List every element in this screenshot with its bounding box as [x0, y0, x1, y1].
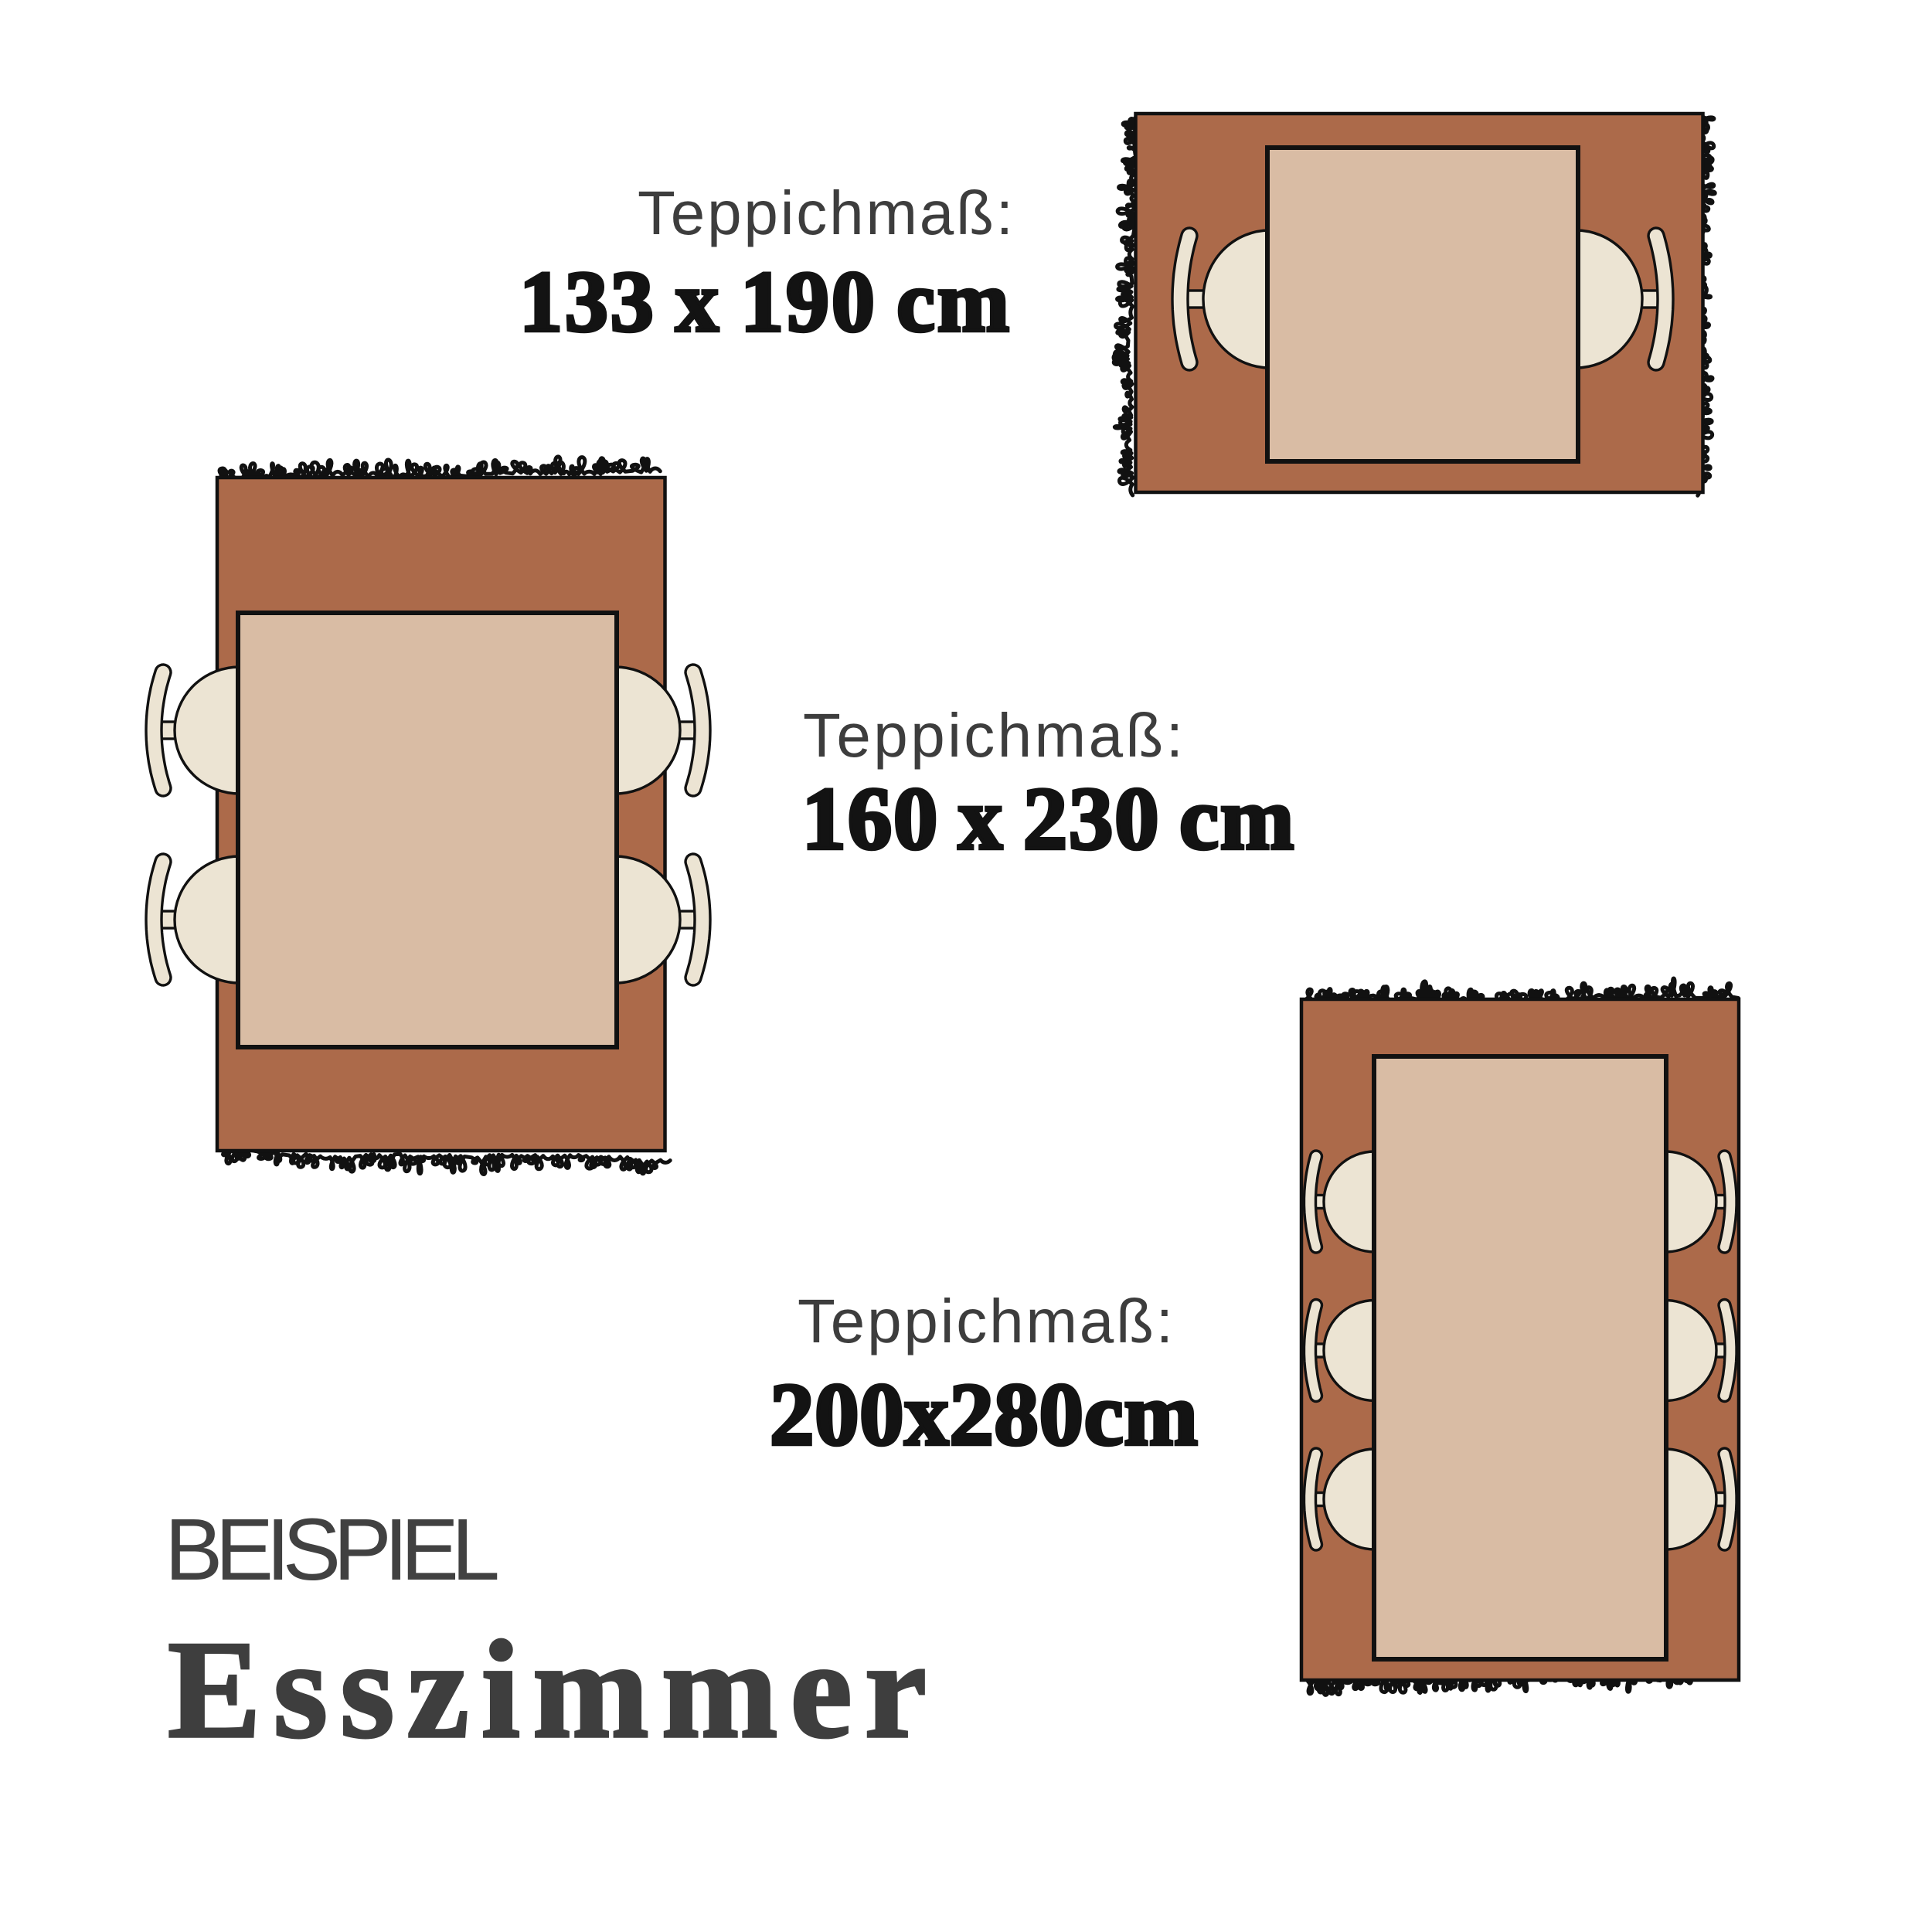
svg-text:200x280cm: 200x280cm — [770, 1366, 1198, 1464]
svg-text:BEISPIEL: BEISPIEL — [165, 1501, 500, 1598]
svg-text:Teppichmaß:: Teppichmaß: — [798, 1287, 1173, 1355]
svg-text:160 x 230 cm: 160 x 230 cm — [802, 770, 1294, 868]
svg-text:Esszimmer: Esszimmer — [168, 1613, 927, 1767]
svg-text:Teppichmaß:: Teppichmaß: — [803, 701, 1183, 770]
svg-text:133 x 190 cm: 133 x 190 cm — [519, 254, 1009, 350]
svg-text:Teppichmaß:: Teppichmaß: — [638, 179, 1013, 247]
